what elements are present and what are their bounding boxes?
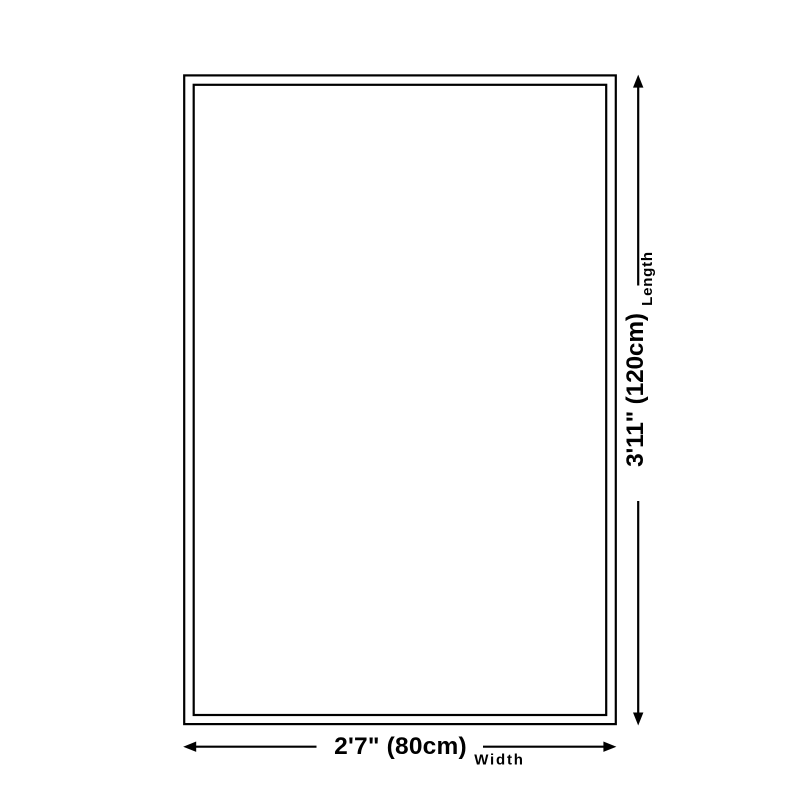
svg-text:2'7" (80cm): 2'7" (80cm) bbox=[334, 733, 467, 760]
svg-text:3'11" (120cm): 3'11" (120cm) bbox=[622, 313, 649, 467]
svg-text:Width: Width bbox=[474, 752, 525, 769]
svg-text:Length: Length bbox=[639, 251, 656, 306]
